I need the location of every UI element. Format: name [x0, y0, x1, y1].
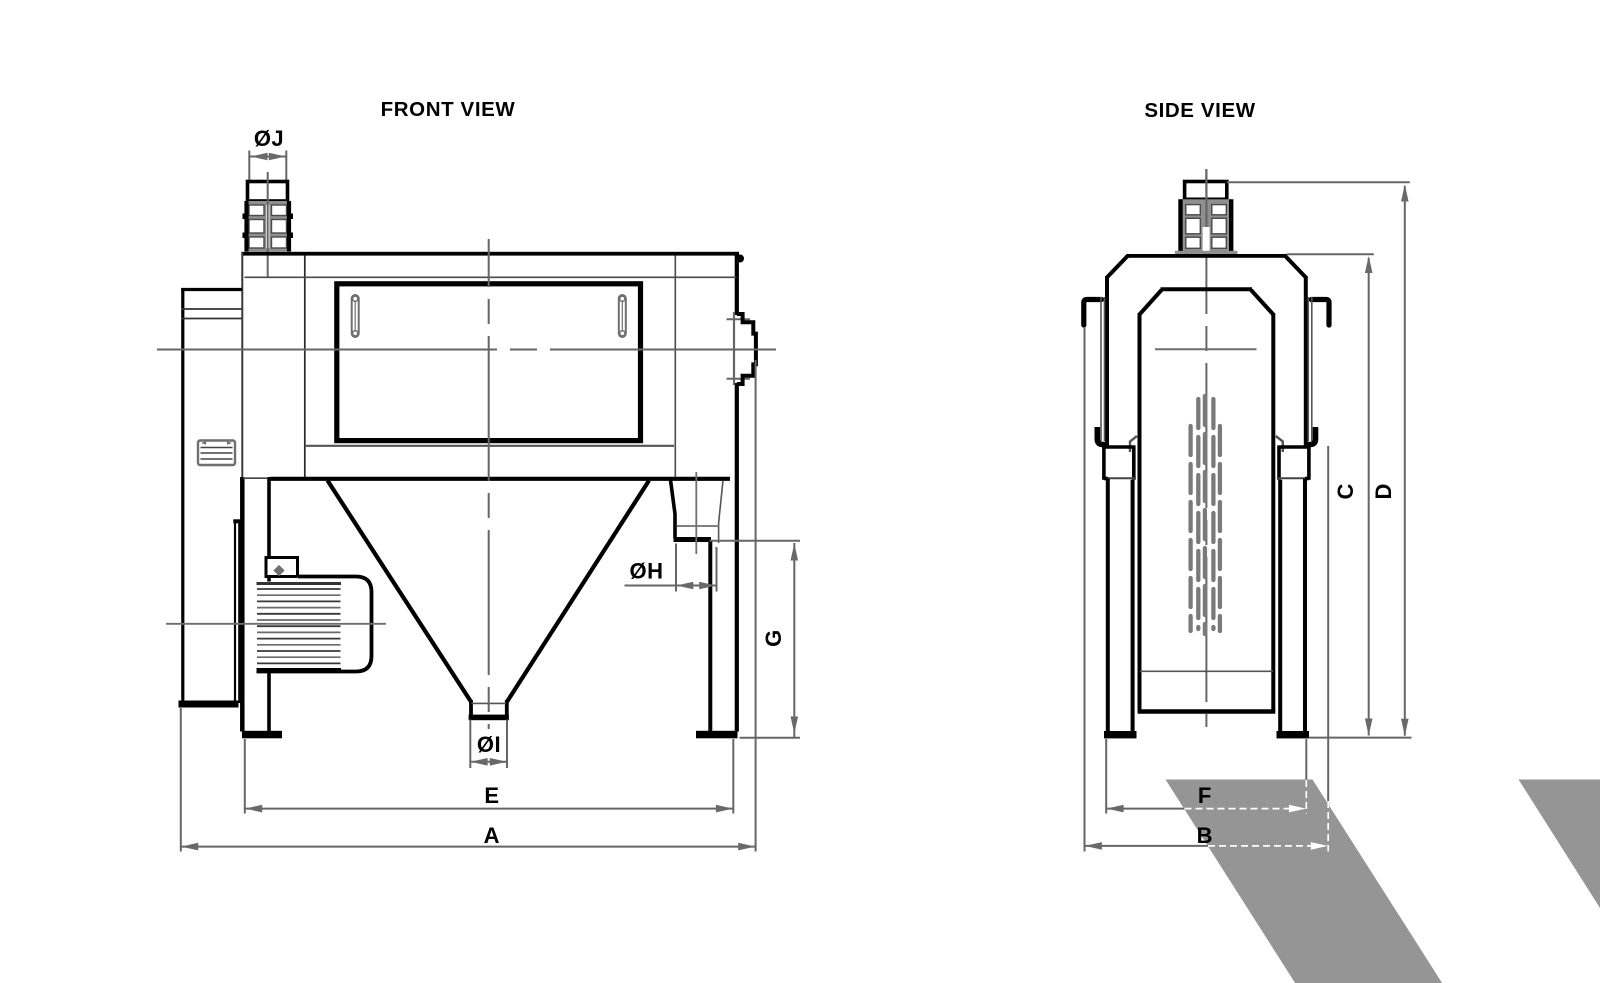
svg-text:B: B [1197, 823, 1213, 848]
svg-text:ØI: ØI [477, 732, 501, 757]
svg-text:FRONT VIEW: FRONT VIEW [381, 98, 516, 121]
svg-text:F: F [1198, 783, 1212, 808]
svg-text:E: E [484, 783, 499, 808]
svg-text:ØJ: ØJ [254, 126, 284, 151]
svg-text:D: D [1371, 483, 1396, 499]
svg-text:A: A [484, 823, 500, 848]
svg-text:SIDE VIEW: SIDE VIEW [1144, 99, 1255, 122]
svg-text:ØH: ØH [630, 559, 664, 584]
svg-text:C: C [1333, 483, 1358, 499]
svg-text:G: G [761, 629, 786, 647]
